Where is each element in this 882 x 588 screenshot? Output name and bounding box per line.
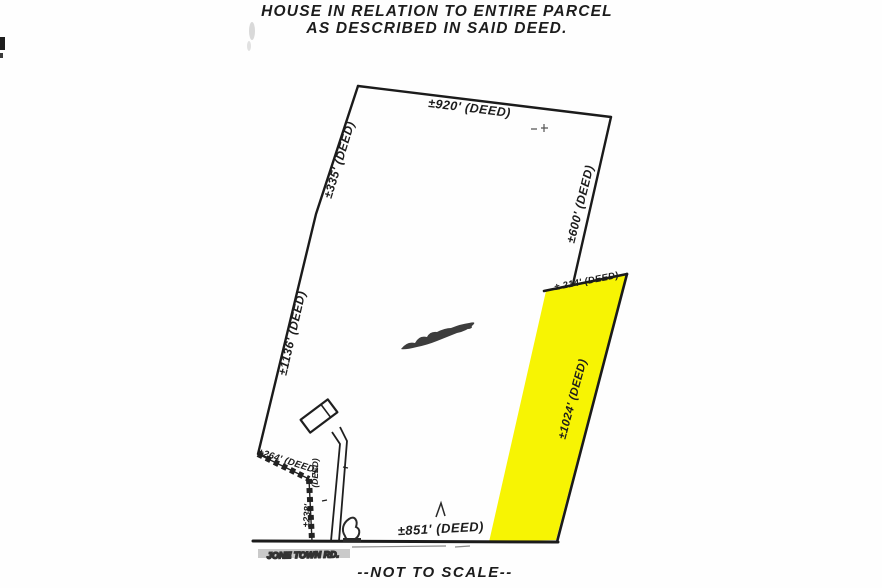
house-divider xyxy=(321,405,331,418)
scan-artifact-smudge-1 xyxy=(249,22,255,40)
scan-artifact-smudge-2 xyxy=(247,41,251,51)
highlighted-strip xyxy=(489,275,626,542)
parcel-sketch: JONE TOWN RD. ±920' (DEED) ±335' (DEED) … xyxy=(0,0,882,588)
scale-note: --NOT TO SCALE-- xyxy=(0,564,870,581)
road-edge-faint xyxy=(352,546,470,547)
scan-artifact-edge-mark-2 xyxy=(0,53,3,58)
road-name-label: JONE TOWN RD. xyxy=(267,549,340,560)
dim-driveway-deed-label: (DEED) xyxy=(310,458,321,488)
road-line xyxy=(253,541,558,542)
house-footprint xyxy=(301,399,338,432)
interior-smudge-dot xyxy=(464,325,472,329)
scan-artifact-edge-mark xyxy=(0,37,5,50)
dim-driveway-length-label: ±238' xyxy=(301,503,314,528)
scan-artifact-survey-mark xyxy=(436,503,445,517)
dim-south-label: ±851' (DEED) xyxy=(397,519,484,538)
scanned-survey-document: HOUSE IN RELATION TO ENTIRE PARCEL AS DE… xyxy=(0,0,882,588)
dim-west-upper-label: ±335' (DEED) xyxy=(321,119,358,200)
outbuilding-blob xyxy=(343,518,359,541)
scan-artifact-plus-marks xyxy=(531,124,548,132)
dim-west-lower-label: ±1136' (DEED) xyxy=(276,289,309,376)
interior-smudge xyxy=(401,322,474,349)
driveway-left-edge xyxy=(331,432,340,541)
